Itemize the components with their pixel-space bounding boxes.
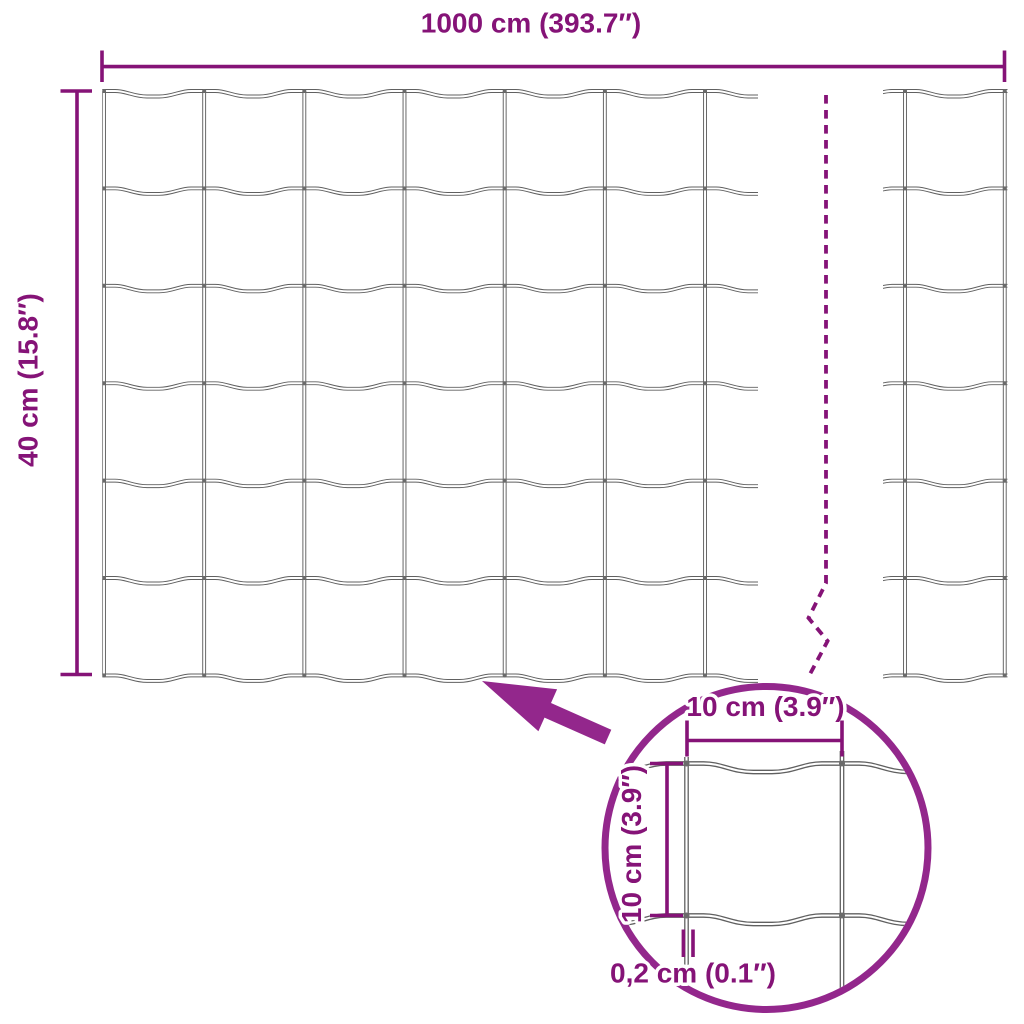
svg-text:0,2 cm (0.1″): 0,2 cm (0.1″) bbox=[610, 958, 776, 989]
svg-text:1000 cm (393.7″): 1000 cm (393.7″) bbox=[421, 8, 641, 39]
svg-text:10 cm (3.9″): 10 cm (3.9″) bbox=[686, 691, 844, 722]
svg-text:10 cm (3.9″): 10 cm (3.9″) bbox=[616, 765, 647, 923]
svg-text:40 cm (15.8″): 40 cm (15.8″) bbox=[13, 293, 44, 467]
